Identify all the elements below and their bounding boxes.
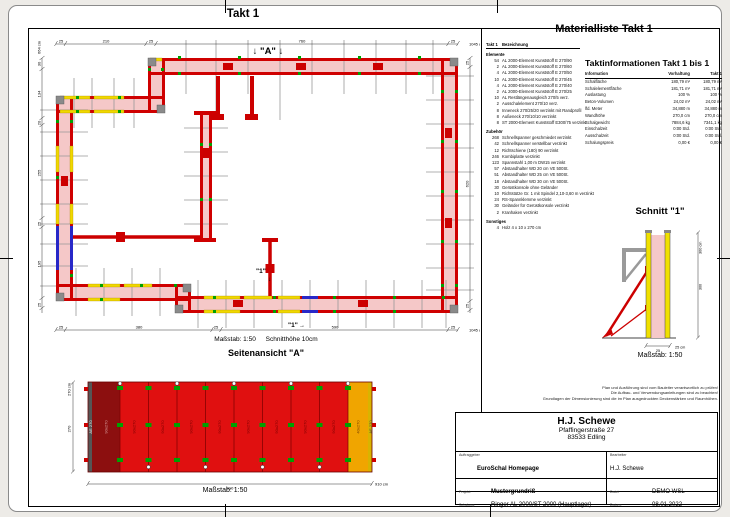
side-view-drawing: AE 270 90x270 90x270 90x270 90x270 90x27…: [55, 362, 400, 494]
taktinfo-label: Schalfläche: [585, 79, 654, 86]
taktinfo-takt-value: 0,00 €: [690, 140, 722, 147]
taktinfo-row: Auslastung 100 % 100 %: [585, 92, 722, 99]
taktinfo-vorhaltung-value: 270,0 cm: [654, 113, 690, 120]
taktinfo-vorhaltung-value: 0:00 Std.: [654, 133, 690, 140]
materialliste-zubehoer-rows: 268 Schnellspanner geschmiedet verzinkt …: [486, 135, 608, 216]
auftraggeber-value: EuroSchal Homepage: [477, 466, 539, 472]
taktinfo-col-vorhaltung: Vorhaltung: [654, 71, 690, 78]
taktinfo-row: Schalelementfläche 181,71 m² 181,71 m²: [585, 86, 722, 93]
schnitt-title: Schnitt "1": [598, 206, 722, 217]
taktinfo-row: Schalfläche 180,79 m² 180,79 m²: [585, 79, 722, 86]
svg-text:25: 25: [451, 39, 456, 44]
auftraggeber-cell: Auftraggeber EuroSchal Homepage: [456, 452, 606, 479]
svg-text:↓: ↓: [268, 277, 271, 283]
svg-text:300: 300: [699, 284, 703, 290]
taktinfo-label: Schalelementfläche: [585, 86, 654, 93]
taktinfo-takt-value: 0:00 Std.: [690, 126, 722, 133]
taktinfo-takt-value: 34,880 m: [690, 106, 722, 113]
column-separator: [481, 28, 482, 412]
materialliste-title: Materialliste Takt 1: [486, 23, 722, 35]
svg-text:760: 760: [299, 39, 306, 44]
sheet-takt-title: Takt 1: [198, 8, 288, 20]
svg-text:590: 590: [332, 325, 339, 330]
fold-mark-left: [0, 258, 13, 259]
bearbeiter-value: H.J. Schewe: [610, 466, 644, 472]
svg-text:25: 25: [37, 221, 42, 226]
svg-text:90x270: 90x270: [274, 420, 279, 434]
materialliste-section-sonstiges: Sonstiges: [486, 219, 608, 224]
bearbeiter-cell: Bearbeiter H.J. Schewe: [607, 452, 717, 479]
svg-text:1045 cm: 1045 cm: [469, 328, 480, 333]
svg-text:90x270: 90x270: [160, 420, 165, 434]
taktinfo-label: Auslastung: [585, 92, 654, 99]
company-name: H.J. Schewe: [456, 416, 717, 427]
material-qty: 2: [486, 210, 499, 216]
svg-text:25 cm: 25 cm: [675, 346, 685, 350]
svg-text:→: →: [299, 323, 305, 329]
svg-text:90x270: 90x270: [217, 420, 222, 434]
taktinfo-row: Beton-Volumen 24,02 m³ 24,02 m³: [585, 99, 722, 106]
taktinfo-row: Einschalzeit 0:00 Std. 0:00 Std.: [585, 126, 722, 133]
datei-cell: Datei:DEMO WSL: [607, 479, 717, 492]
materialliste-header: Takt 1 Bezeichnung: [486, 42, 580, 49]
materialliste-section-elemente: Elemente: [486, 52, 608, 57]
taktinfo-label: Ausschalzeit: [585, 133, 654, 140]
material-qty: 4: [486, 225, 499, 231]
taktinfo-takt-value: 270,0 cm: [690, 113, 722, 120]
material-qty: 8: [486, 120, 499, 126]
material-row: 4 Holz 4 x 10 x 270 cm: [486, 225, 608, 231]
taktinfo-takt-value: 7341,1 kg: [690, 120, 722, 127]
title-block-company-header: H.J. Schewe Pfaffingerstraße 27 83533 Ed…: [456, 413, 717, 452]
taktinfo-label: Einschalzeit: [585, 126, 654, 133]
svg-text:"1": "1": [256, 268, 266, 275]
taktinfo-title: Taktinformationen Takt 1 bis 1: [585, 58, 722, 68]
schnitt-wall: [645, 230, 671, 338]
schalung-label: Schalung:: [459, 503, 491, 507]
schalung-value: Ringer AL 2000/ST 2000 (Hauptlager): [491, 502, 591, 508]
schalung-cell: Schalung:Ringer AL 2000/ST 2000 (Hauptla…: [456, 492, 606, 505]
taktinfo-label: lfd. Meter: [585, 106, 654, 113]
taktinfo-vorhaltung-value: 100 %: [654, 92, 690, 99]
schnitt-drawing: 300 cm 300 25 25 cm: [598, 220, 722, 355]
svg-text:40x270: 40x270: [356, 420, 361, 434]
svg-text:1045 cm: 1045 cm: [469, 42, 480, 47]
svg-text:25: 25: [465, 303, 470, 308]
materialliste-sonstiges-rows: 4 Holz 4 x 10 x 270 cm: [486, 225, 608, 231]
side-view-scale: Maßstab: 1:50: [130, 487, 320, 494]
taktinfo-vorhaltung-value: 0:00 Std.: [654, 126, 690, 133]
material-name: Kranhaken verzinkt: [502, 210, 608, 216]
material-name: Holz 4 x 10 x 270 cm: [502, 225, 608, 231]
taktinfo-row: Ausschalzeit 0:00 Std. 0:00 Std.: [585, 133, 722, 140]
svg-text:270: 270: [67, 425, 72, 432]
datum-value: 08.01.2022: [652, 502, 682, 508]
taktinfo-vorhaltung-value: 181,71 m²: [654, 86, 690, 93]
taktinfo-vorhaltung-value: 0,00 €: [654, 140, 690, 147]
taktinfo-header-row: Information Vorhaltung Takt 1: [585, 71, 722, 79]
bearbeiter-label: Bearbeiter: [610, 453, 714, 457]
svg-text:90x270: 90x270: [303, 420, 308, 434]
taktinfo-col-info: Information: [585, 71, 654, 78]
taktinfo-vorhaltung-value: 7884,6 kg: [654, 120, 690, 127]
taktinfo-col-takt: Takt 1: [690, 71, 722, 78]
taktinfo-label: Schalgewicht: [585, 120, 654, 127]
datum-cell: Datum:08.01.2022: [607, 492, 717, 505]
plan-scale-label: Maßstab: 1:50: [214, 336, 256, 343]
svg-text:90x270: 90x270: [104, 420, 109, 434]
svg-text:"1": "1": [288, 322, 298, 329]
taktinfo-row: Schalgewicht 7884,6 kg 7341,1 kg: [585, 120, 722, 127]
taktinfo-vorhaltung-value: 34,880 m: [654, 106, 690, 113]
company-street: Pfaffingerstraße 27: [456, 427, 717, 434]
taktinfo-label: Wandhöhe: [585, 113, 654, 120]
svg-text:134: 134: [37, 90, 42, 97]
view-marker-a: ↓ "A" ↓: [253, 46, 284, 57]
taktinfo-rows: Schalfläche 180,79 m² 180,79 m² Schalele…: [585, 79, 722, 147]
svg-text:AE 270: AE 270: [88, 420, 93, 434]
taktinfo-row: lfd. Meter 34,880 m 34,880 m: [585, 106, 722, 113]
title-block: H.J. Schewe Pfaffingerstraße 27 83533 Ed…: [455, 412, 718, 505]
page-background: Takt 1: [0, 0, 730, 517]
svg-text:90x270: 90x270: [132, 420, 137, 434]
material-row: 2 Kranhaken verzinkt: [486, 210, 608, 216]
disclaimer-text: Plan und Ausführung sind vom Bauleiter v…: [440, 385, 718, 401]
svg-text:195: 195: [37, 260, 42, 267]
svg-text:25: 25: [149, 39, 154, 44]
taktinfo-vorhaltung-value: 24,02 m³: [654, 99, 690, 106]
svg-text:270 cm: 270 cm: [67, 382, 72, 396]
svg-text:664 cm: 664 cm: [37, 40, 42, 54]
svg-text:910 cm: 910 cm: [375, 482, 389, 487]
svg-text:25: 25: [59, 39, 64, 44]
svg-text:25: 25: [465, 60, 470, 65]
auftraggeber-label: Auftraggeber: [459, 453, 603, 457]
svg-text:255: 255: [37, 169, 42, 176]
taktinfo-row: Schalungspreis 0,00 € 0,00 €: [585, 140, 722, 147]
materialliste-header-name: Bezeichnung: [502, 42, 528, 47]
schnitt-scale: Maßstab: 1:50: [598, 352, 722, 359]
taktinfo-takt-value: 0:00 Std.: [690, 133, 722, 140]
plan-scale-note: Maßstab: 1:50 Schnitthöhe 10cm: [150, 336, 382, 343]
projekt-cell: Projekt:Mustergrundriß: [456, 479, 606, 492]
section-marker-1-bottom: "1" →: [288, 322, 305, 329]
taktinfo-label: Beton-Volumen: [585, 99, 654, 106]
materialliste-header-qty: Takt 1: [486, 42, 499, 47]
plan-cut-height-label: Schnitthöhe 10cm: [266, 336, 318, 343]
taktinfo-takt-value: 100 %: [690, 92, 722, 99]
taktinfo-vorhaltung-value: 180,79 m²: [654, 79, 690, 86]
datum-label: Datum:: [610, 503, 642, 507]
taktinfo-panel: Taktinformationen Takt 1 bis 1 Informati…: [585, 58, 722, 147]
taktinfo-takt-value: 24,02 m³: [690, 99, 722, 106]
svg-text:620: 620: [465, 180, 470, 187]
svg-text:25: 25: [37, 302, 42, 307]
svg-text:90x270: 90x270: [189, 420, 194, 434]
svg-text:20: 20: [37, 120, 42, 125]
company-city: 83533 Edling: [456, 434, 717, 441]
svg-text:90x270: 90x270: [246, 420, 251, 434]
taktinfo-row: Wandhöhe 270,0 cm 270,0 cm: [585, 113, 722, 120]
taktinfo-takt-value: 180,79 m²: [690, 79, 722, 86]
svg-text:25: 25: [451, 325, 456, 330]
svg-text:25: 25: [214, 325, 219, 330]
floor-plan-drawing: 25 210 25 760 25 1045 cm 30 134 20 255 2…: [28, 28, 480, 340]
disclaimer-line-3: Grundlagen der Dimensionierung sind die …: [440, 396, 718, 401]
svg-text:30: 30: [37, 61, 42, 66]
svg-text:25: 25: [59, 325, 64, 330]
fold-mark-top-right: [497, 0, 498, 13]
svg-text:300 cm: 300 cm: [699, 242, 703, 254]
svg-text:90x270: 90x270: [331, 420, 336, 434]
side-view-title: Seitenansicht "A": [150, 348, 382, 358]
svg-text:210: 210: [103, 39, 110, 44]
taktinfo-takt-value: 181,71 m²: [690, 86, 722, 93]
svg-text:380: 380: [136, 325, 143, 330]
taktinfo-label: Schalungspreis: [585, 140, 654, 147]
